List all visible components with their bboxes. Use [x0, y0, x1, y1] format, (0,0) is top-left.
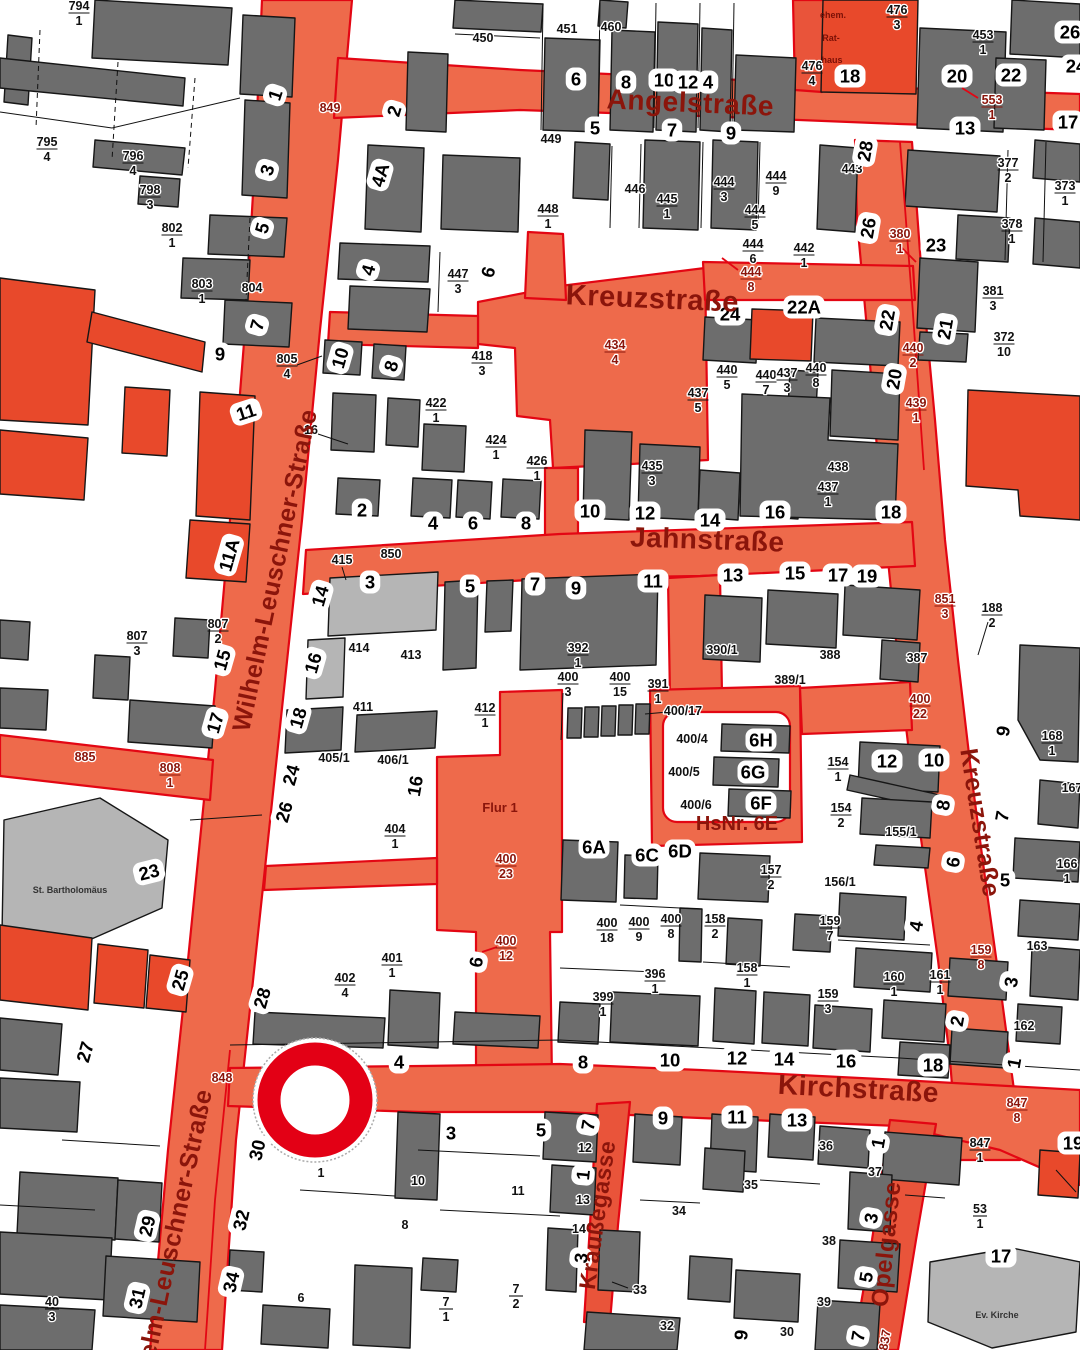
map-annotation-text: Rat-: [822, 33, 840, 43]
svg-text:20: 20: [947, 66, 968, 87]
svg-text:15: 15: [613, 685, 627, 699]
svg-text:435: 435: [642, 459, 663, 473]
house-number-badge: 16: [760, 501, 791, 524]
house-number-badge: 13: [782, 1109, 813, 1132]
svg-text:372: 372: [994, 330, 1015, 344]
svg-text:1: 1: [1009, 232, 1016, 246]
svg-text:1: 1: [600, 1005, 607, 1019]
svg-text:1: 1: [433, 411, 440, 425]
building: [441, 155, 520, 232]
svg-text:807: 807: [208, 617, 229, 631]
svg-text:2: 2: [712, 927, 719, 941]
house-number-badge: 3: [360, 571, 381, 594]
parcel-label: 413: [401, 648, 422, 662]
svg-text:418: 418: [472, 349, 493, 363]
parcel-label: 460: [601, 20, 622, 34]
building: [1030, 946, 1080, 1000]
svg-text:5: 5: [465, 576, 475, 597]
svg-text:848: 848: [212, 1071, 233, 1085]
svg-text:804: 804: [242, 281, 263, 295]
highlighted-building: [122, 387, 170, 456]
building: [0, 620, 30, 660]
svg-text:448: 448: [538, 202, 559, 216]
svg-text:415: 415: [332, 553, 353, 567]
svg-text:10: 10: [924, 750, 945, 771]
svg-text:10: 10: [411, 1174, 425, 1188]
house-number-badge: 17: [1053, 111, 1080, 134]
svg-text:13: 13: [787, 1110, 808, 1131]
parcel-label: 438: [828, 460, 849, 474]
svg-text:442: 442: [794, 241, 815, 255]
building: [813, 1005, 872, 1052]
building: [0, 1232, 112, 1300]
house-number-badge: 10: [575, 500, 606, 523]
parcel-label: 400/5: [668, 765, 699, 779]
svg-text:4: 4: [612, 353, 619, 367]
building: [348, 286, 430, 332]
svg-text:34: 34: [672, 1204, 686, 1218]
svg-text:4: 4: [394, 1052, 405, 1073]
svg-text:2: 2: [838, 816, 845, 830]
parcel-label: 162: [1014, 1019, 1035, 1033]
map-annotation-text: ehem.: [820, 10, 846, 20]
parcel-label: 167: [1062, 781, 1080, 795]
parcel-label: 400/17: [664, 704, 702, 718]
house-number-badge: 24: [1061, 55, 1080, 78]
highlighted-building: [94, 944, 148, 1008]
svg-text:38: 38: [822, 1234, 836, 1248]
svg-text:3: 3: [721, 190, 728, 204]
svg-text:2: 2: [1005, 171, 1012, 185]
svg-text:158: 158: [705, 912, 726, 926]
house-number-badge: 8: [573, 1051, 594, 1074]
svg-text:1: 1: [835, 770, 842, 784]
svg-text:156/1: 156/1: [824, 875, 855, 889]
svg-text:400: 400: [610, 670, 631, 684]
building: [453, 1012, 540, 1048]
svg-text:23: 23: [926, 235, 947, 256]
svg-text:3: 3: [365, 572, 375, 593]
parcel-label: 405/1: [318, 751, 349, 765]
svg-text:53: 53: [973, 1202, 987, 1216]
svg-text:5: 5: [590, 118, 600, 139]
building: [698, 853, 770, 902]
building: [453, 0, 543, 32]
svg-text:389/1: 389/1: [774, 673, 805, 687]
house-number-badge: 6D: [665, 840, 696, 863]
svg-text:444: 444: [766, 169, 787, 183]
parcel-label: 400/6: [680, 798, 711, 812]
svg-text:162: 162: [1014, 1019, 1035, 1033]
svg-text:5: 5: [752, 218, 759, 232]
svg-text:803: 803: [192, 277, 213, 291]
building: [838, 893, 906, 940]
svg-text:451: 451: [557, 22, 578, 36]
svg-text:18: 18: [600, 931, 614, 945]
svg-text:3: 3: [990, 299, 997, 313]
svg-text:6F: 6F: [750, 793, 772, 814]
svg-text:553: 553: [982, 93, 1003, 107]
svg-text:5: 5: [724, 378, 731, 392]
house-number-badge: 18: [876, 501, 907, 524]
svg-text:381: 381: [983, 284, 1004, 298]
svg-text:9: 9: [636, 930, 643, 944]
svg-text:3: 3: [942, 607, 949, 621]
svg-text:399: 399: [593, 990, 614, 1004]
parcel-label: 155/1: [885, 825, 916, 839]
svg-text:1: 1: [482, 716, 489, 730]
svg-text:9: 9: [215, 344, 225, 365]
parcel-label: 411: [353, 700, 373, 714]
house-number-badge: 4: [423, 512, 444, 535]
svg-text:444: 444: [714, 175, 735, 189]
parcel-label: 446: [625, 182, 646, 196]
building: [882, 1132, 962, 1185]
svg-text:12: 12: [578, 1141, 592, 1155]
parcel-label: 34: [672, 1204, 686, 1218]
house-number-badge: 13: [950, 117, 981, 140]
parcel-label: 37: [868, 1165, 882, 1179]
highlighted-building: [0, 430, 88, 500]
svg-text:849: 849: [320, 101, 341, 115]
parcel-label: 8: [402, 1218, 409, 1232]
svg-text:154: 154: [831, 801, 852, 815]
svg-text:3: 3: [565, 685, 572, 699]
svg-text:807: 807: [127, 629, 148, 643]
building: [92, 0, 232, 65]
house-number-badge: 17: [823, 564, 854, 587]
svg-text:2: 2: [357, 500, 367, 521]
svg-text:406/1: 406/1: [377, 753, 408, 767]
svg-text:16: 16: [836, 1051, 857, 1072]
svg-text:15: 15: [785, 563, 806, 584]
svg-text:1: 1: [655, 692, 662, 706]
svg-text:400: 400: [910, 692, 931, 706]
svg-text:32: 32: [660, 1319, 674, 1333]
parcel-label: 450: [473, 31, 494, 45]
parcel-label: 389/1: [774, 673, 805, 687]
svg-text:18: 18: [923, 1055, 944, 1076]
svg-text:453: 453: [973, 28, 994, 42]
house-number-badge: 15: [780, 562, 811, 585]
svg-text:157: 157: [761, 863, 782, 877]
svg-text:422: 422: [426, 396, 447, 410]
building: [1033, 218, 1080, 268]
svg-text:796: 796: [123, 149, 144, 163]
building: [905, 150, 1000, 212]
svg-text:6G: 6G: [741, 762, 766, 783]
svg-text:3: 3: [784, 381, 791, 395]
svg-text:1: 1: [937, 983, 944, 997]
building: [93, 655, 130, 700]
building: [242, 100, 290, 198]
svg-text:440: 440: [806, 361, 827, 375]
svg-text:795: 795: [37, 135, 58, 149]
house-number-badge: 9: [566, 577, 587, 600]
svg-text:445: 445: [657, 192, 678, 206]
svg-text:6H: 6H: [749, 730, 773, 751]
svg-text:7: 7: [827, 929, 834, 943]
svg-text:4: 4: [809, 74, 816, 88]
svg-text:847: 847: [1007, 1096, 1028, 1110]
svg-text:4: 4: [284, 367, 291, 381]
svg-text:14: 14: [774, 1049, 795, 1070]
parcel-label: 11: [511, 1184, 524, 1198]
svg-text:447: 447: [448, 267, 469, 281]
svg-text:26: 26: [856, 216, 880, 240]
svg-text:2: 2: [910, 356, 917, 370]
svg-text:168: 168: [1042, 729, 1063, 743]
parcel-label: 10: [411, 1174, 425, 1188]
building: [766, 590, 838, 648]
house-number-badge: 22A: [783, 296, 825, 319]
svg-text:449: 449: [541, 132, 562, 146]
svg-text:1: 1: [389, 966, 396, 980]
svg-text:33: 33: [633, 1283, 647, 1297]
parcel-label: 36: [819, 1139, 833, 1153]
building: [573, 142, 610, 200]
building: [734, 1270, 800, 1322]
building: [406, 52, 448, 132]
svg-text:6: 6: [750, 252, 757, 266]
house-number-badge: 9: [728, 1324, 753, 1347]
svg-text:444: 444: [743, 237, 764, 251]
building: [0, 1078, 80, 1132]
svg-text:22: 22: [913, 707, 927, 721]
parcel-label: 415: [332, 553, 353, 567]
svg-text:400/4: 400/4: [676, 732, 707, 746]
svg-text:1: 1: [493, 448, 500, 462]
svg-text:26: 26: [1060, 22, 1080, 43]
house-number-badge: 6: [566, 68, 587, 91]
svg-text:6: 6: [468, 513, 478, 534]
svg-text:10: 10: [997, 345, 1011, 359]
building: [422, 424, 466, 472]
svg-text:1: 1: [652, 982, 659, 996]
house-number-badge: 2: [352, 499, 373, 522]
building: [703, 1148, 745, 1192]
building: [817, 145, 858, 232]
svg-text:1: 1: [977, 1151, 984, 1165]
map-annotation-text: Ev. Kirche: [975, 1310, 1018, 1320]
house-number-badge: 10: [655, 1049, 686, 1072]
house-number-badge: 6: [463, 512, 484, 535]
house-number-badge: 19: [1058, 1132, 1080, 1155]
parcel-label: 885: [75, 750, 96, 764]
svg-text:437: 437: [777, 366, 798, 380]
svg-text:3: 3: [479, 364, 486, 378]
svg-text:7: 7: [443, 1295, 450, 1309]
svg-text:847: 847: [970, 1136, 991, 1150]
svg-text:2: 2: [513, 1297, 520, 1311]
svg-text:850: 850: [381, 547, 402, 561]
house-number-badge: 22: [996, 64, 1027, 87]
svg-text:444: 444: [741, 265, 762, 279]
svg-text:1: 1: [167, 776, 174, 790]
svg-text:4: 4: [342, 986, 349, 1000]
street-kreuzstrasse-stich: [525, 232, 566, 300]
house-number-badge: 14: [769, 1048, 800, 1071]
svg-text:22: 22: [875, 308, 899, 332]
svg-text:1: 1: [318, 1166, 325, 1180]
svg-text:6: 6: [571, 69, 581, 90]
svg-text:18: 18: [840, 66, 861, 87]
map-canvas[interactable]: 7941795479647983802180318048054807280738…: [0, 0, 1080, 1350]
street-label: Jahnstraße: [630, 521, 785, 557]
svg-text:9: 9: [658, 1108, 668, 1129]
svg-text:13: 13: [723, 565, 744, 586]
house-number-badge: 20: [942, 65, 973, 88]
house-number-badge: 12: [872, 750, 903, 773]
svg-text:3: 3: [49, 1310, 56, 1324]
svg-text:377: 377: [998, 156, 1019, 170]
svg-text:387: 387: [907, 651, 928, 665]
svg-text:391: 391: [648, 677, 669, 691]
svg-text:1: 1: [664, 207, 671, 221]
house-number-badge: 18: [835, 65, 866, 88]
svg-text:1: 1: [76, 14, 83, 28]
house-number-badge: 5: [585, 117, 606, 140]
svg-text:11: 11: [643, 571, 663, 592]
house-number-badge: 26: [1055, 21, 1080, 44]
svg-text:3: 3: [134, 644, 141, 658]
svg-text:30: 30: [780, 1325, 794, 1339]
svg-text:402: 402: [335, 971, 356, 985]
house-number-badge: 9: [721, 122, 742, 145]
svg-text:396: 396: [645, 967, 666, 981]
svg-text:414: 414: [349, 641, 370, 655]
svg-text:400: 400: [597, 916, 618, 930]
highlighted-building: [0, 278, 95, 425]
building: [601, 706, 616, 736]
parcel-label: 850: [381, 547, 402, 561]
svg-text:401: 401: [382, 951, 403, 965]
svg-text:23: 23: [499, 867, 513, 881]
parcel-label: 33: [633, 1283, 647, 1297]
svg-text:851: 851: [935, 592, 956, 606]
svg-text:159: 159: [818, 987, 839, 1001]
parcel-label: 390/1: [706, 643, 737, 657]
svg-text:450: 450: [473, 31, 494, 45]
svg-text:380: 380: [890, 227, 911, 241]
svg-text:37: 37: [868, 1165, 882, 1179]
parcel-label: 6: [298, 1291, 305, 1305]
house-number-badge: 7: [525, 573, 546, 596]
building: [261, 1305, 330, 1348]
svg-text:6: 6: [298, 1291, 305, 1305]
house-number-badge: 9: [210, 343, 231, 366]
building: [643, 140, 700, 230]
svg-text:444: 444: [745, 203, 766, 217]
svg-text:437: 437: [818, 480, 839, 494]
svg-text:1: 1: [897, 242, 904, 256]
house-number-badge: 11: [638, 570, 669, 593]
svg-text:476: 476: [802, 59, 823, 73]
svg-text:19: 19: [857, 566, 878, 587]
building: [17, 1172, 118, 1240]
svg-text:440: 440: [756, 368, 777, 382]
svg-text:35: 35: [744, 1178, 758, 1192]
svg-text:1: 1: [744, 976, 751, 990]
svg-text:12: 12: [499, 949, 513, 963]
svg-text:6C: 6C: [635, 845, 659, 866]
svg-text:5: 5: [536, 1120, 546, 1141]
svg-text:160: 160: [884, 970, 905, 984]
building: [762, 992, 810, 1046]
svg-text:16: 16: [765, 502, 786, 523]
building: [567, 708, 582, 738]
parcel-label: 1: [318, 1166, 325, 1180]
svg-text:388: 388: [820, 648, 841, 662]
svg-text:378: 378: [1002, 217, 1023, 231]
svg-text:28: 28: [853, 139, 877, 163]
building: [331, 393, 376, 452]
svg-text:1: 1: [1062, 194, 1069, 208]
svg-text:11: 11: [727, 1107, 747, 1128]
svg-text:1: 1: [913, 411, 920, 425]
building: [388, 990, 440, 1048]
svg-text:400/17: 400/17: [664, 704, 702, 718]
house-number-badge: 18: [918, 1054, 949, 1077]
svg-text:1: 1: [534, 469, 541, 483]
parcel-label: 400/4: [676, 732, 707, 746]
svg-text:460: 460: [601, 20, 622, 34]
parcel-label: 32: [660, 1319, 674, 1333]
svg-text:2: 2: [768, 878, 775, 892]
svg-text:166: 166: [1057, 857, 1078, 871]
svg-text:18: 18: [881, 502, 902, 523]
parcel-label: 163: [1027, 939, 1048, 953]
svg-text:17: 17: [1058, 112, 1079, 133]
svg-text:802: 802: [162, 221, 183, 235]
no-entry-sign: [269, 1054, 361, 1146]
house-number-badge: 5: [460, 575, 481, 598]
parcel-label: 30: [780, 1325, 794, 1339]
house-number-badge: 8: [516, 512, 537, 535]
svg-text:8: 8: [578, 1052, 588, 1073]
svg-text:3: 3: [147, 198, 154, 212]
house-number-badge: 7: [662, 119, 683, 142]
building: [208, 215, 287, 257]
building: [726, 918, 762, 966]
svg-text:413: 413: [401, 648, 422, 662]
svg-text:412: 412: [475, 701, 496, 715]
svg-text:400: 400: [558, 670, 579, 684]
svg-text:7: 7: [513, 1282, 520, 1296]
building: [173, 618, 210, 658]
svg-text:404: 404: [385, 822, 406, 836]
house-number-badge: 12: [722, 1047, 753, 1070]
svg-text:22: 22: [1001, 65, 1022, 86]
svg-text:411: 411: [353, 700, 373, 714]
building: [679, 908, 702, 962]
map-annotation-text: St. Bartholomäus: [33, 885, 108, 895]
svg-text:158: 158: [737, 961, 758, 975]
svg-text:1: 1: [1049, 744, 1056, 758]
svg-text:159: 159: [971, 943, 992, 957]
svg-text:159: 159: [820, 914, 841, 928]
svg-text:17: 17: [828, 565, 849, 586]
svg-text:155/1: 155/1: [885, 825, 916, 839]
house-number-badge: 10: [919, 749, 950, 772]
svg-text:1: 1: [825, 495, 832, 509]
map-annotation-text: HsNr. 6E: [696, 813, 778, 835]
svg-text:4: 4: [130, 164, 137, 178]
svg-text:7: 7: [667, 120, 677, 141]
parcel-label: 156/1: [824, 875, 855, 889]
svg-text:808: 808: [160, 761, 181, 775]
svg-text:400: 400: [661, 912, 682, 926]
